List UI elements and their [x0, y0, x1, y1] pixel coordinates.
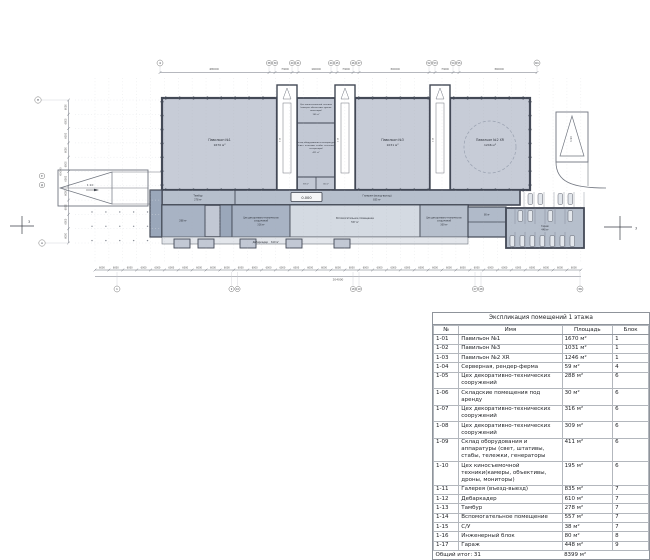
room-block: 6 — [613, 389, 649, 405]
room-block: 1 — [613, 335, 649, 344]
svg-text:Д: Д — [41, 183, 43, 187]
room-name: Цех декоративно-технических сооружений — [459, 422, 562, 438]
room-area-label: 1031 м² — [386, 143, 399, 147]
dim-label: 6000 — [224, 266, 230, 269]
room-block: 6 — [613, 462, 649, 486]
room-block: 6 — [613, 422, 649, 438]
car-icon — [548, 211, 553, 222]
dim-label: 6000 — [529, 266, 535, 269]
room-area: 288 м² — [562, 372, 613, 388]
room-number: 1-17 — [434, 541, 459, 550]
room-name: Дебаркадер — [459, 495, 562, 504]
dim-label: 6000 — [488, 266, 494, 269]
room-area: 309 м² — [562, 422, 613, 438]
room-label: Цех киносъемочной техники — [300, 103, 332, 106]
room-label: мониторы) — [310, 110, 322, 112]
room-area: 80 м² — [562, 532, 613, 541]
room-area: 557 м² — [562, 513, 613, 522]
west-end-block — [150, 190, 162, 237]
car-icon — [518, 211, 523, 222]
dim-label: 6000 — [238, 266, 244, 269]
dim-label: 6000 — [502, 266, 508, 269]
room-number: 1-08 — [434, 422, 459, 438]
room-block: 4 — [613, 363, 649, 372]
room-label: генераторы) — [309, 148, 323, 150]
room-name: Складские помещения под аренду — [459, 389, 562, 405]
room-area-label: 195 м² — [312, 113, 319, 116]
dim-label: 7900 — [281, 67, 289, 71]
grid-bubble: 18 — [350, 286, 355, 291]
grid-bubble: 36 — [577, 286, 583, 292]
room-area-label: 411 м² — [312, 151, 319, 154]
room-number: 1-02 — [434, 344, 459, 353]
right-ramp: 1:10 — [556, 112, 606, 188]
grid-bubble: 44 — [328, 60, 333, 65]
dim-label: 6000 — [65, 189, 68, 195]
schedule-footer-empty — [613, 551, 649, 560]
table-row: 1-15 С/У 38 м² 7 — [434, 523, 649, 532]
dim-label: 6000 — [460, 266, 466, 269]
svg-text:45: 45 — [335, 62, 339, 65]
dim-label: 6000 — [182, 266, 188, 269]
dim-label: 6000 — [363, 266, 369, 269]
dim-label: 6000 — [446, 266, 452, 269]
car-icon — [530, 236, 535, 247]
room-name: Павильон №3 — [459, 344, 562, 353]
dim-label: 6000 — [65, 132, 68, 138]
room-number: 1-11 — [434, 485, 459, 494]
vestibule-tower: 1:10 — [430, 85, 450, 190]
room-area-label: 316 м² — [257, 224, 265, 227]
car-icon — [550, 236, 555, 247]
svg-text:10: 10 — [236, 288, 240, 291]
schedule-grid: № Имя Площадь Блок 1-01 Павильон №1 1670… — [433, 325, 649, 559]
svg-text:40: 40 — [290, 62, 294, 65]
schedule-footer-row: Общий итог: 31 8399 м² — [434, 551, 649, 560]
car-icon — [540, 236, 545, 247]
room-name: Цех декоративно-технических сооружений — [459, 372, 562, 388]
dim-label: 16000 — [311, 67, 321, 71]
section-number: 3 — [635, 227, 637, 231]
grid-bubble: 55 — [456, 60, 461, 65]
room-area: 316 м² — [562, 405, 613, 421]
room-name: Вспомогательное помещение — [459, 513, 562, 522]
room-number: 1-13 — [434, 504, 459, 513]
left-ramp: 1:10 — [58, 170, 162, 206]
room-name: Галерея (въезд-выезд) — [459, 485, 562, 494]
room-area: 1246 м² — [562, 354, 613, 363]
dim-label: 6000 — [557, 266, 563, 269]
floor-plan: 1:10 1:10 — [0, 0, 650, 310]
dim-label: 6000 — [377, 266, 383, 269]
bottom-dim-chain: 204000 600060006000600060006000600060006… — [94, 266, 583, 286]
dim-label: 6000 — [432, 266, 438, 269]
svg-text:52: 52 — [427, 62, 431, 65]
schedule-title: Экспликация помещений 1 этажа — [433, 313, 649, 325]
dim-label: 6000 — [113, 266, 119, 269]
room-area: 195 м² — [562, 462, 613, 486]
col-header-num: № — [434, 326, 459, 335]
dim-label: 6000 — [571, 266, 577, 269]
svg-text:47: 47 — [357, 62, 361, 65]
schedule-body: 1-01 Павильон №1 1670 м² 1 1-02 Павильон… — [434, 335, 649, 551]
room-block: 6 — [613, 438, 649, 462]
dim-label: 6000 — [127, 266, 133, 269]
svg-text:28: 28 — [479, 288, 483, 291]
schedule-header-row: № Имя Площадь Блок — [434, 326, 649, 335]
dim-label: 60000 — [59, 167, 63, 176]
room-label: Дебаркадер — [253, 241, 269, 244]
room-label: Павильон №3 — [381, 138, 404, 142]
dim-label: 6000 — [196, 266, 202, 269]
section-number: 3 — [28, 220, 30, 224]
svg-text:39: 39 — [273, 62, 277, 65]
room-label: (камеры, объективы, дроны, — [300, 106, 332, 109]
dim-label: 204000 — [333, 278, 344, 282]
dim-label: 36000 — [494, 67, 504, 71]
svg-text:54: 54 — [451, 62, 455, 65]
col-header-area: Площадь — [562, 326, 613, 335]
grid-bubble: 19 — [356, 286, 361, 291]
room-label: Павильон №2 XR — [476, 138, 505, 142]
grid-bubble: Н — [35, 97, 69, 103]
svg-text:46: 46 — [351, 62, 355, 65]
room-label: Вспомогательное помещение — [336, 217, 374, 220]
room-number: 1-05 — [434, 372, 459, 388]
room-label: Павильон №1 — [208, 138, 231, 142]
dim-label: 6000 — [335, 266, 341, 269]
room-area-label: 557 м² — [351, 221, 359, 224]
room-area: 38 м² — [562, 523, 613, 532]
svg-text:55: 55 — [457, 62, 461, 65]
dim-label: 6000 — [266, 266, 272, 269]
grid-bubble: 41 — [295, 60, 300, 65]
dim-label: 7900 — [342, 67, 350, 71]
dim-label: 6000 — [141, 266, 147, 269]
room-block: 7 — [613, 504, 649, 513]
column-dots — [91, 211, 148, 241]
svg-text:19: 19 — [357, 288, 361, 291]
room-label: (свет, штативы, стабы, тележки, — [298, 144, 335, 147]
room-label: Галерея (въезд-выезд) — [362, 195, 391, 198]
room-block: 8 — [613, 532, 649, 541]
table-row: 1-09 Склад оборудования и аппаратуры (св… — [434, 438, 649, 462]
dim-label: 6000 — [65, 147, 68, 153]
dim-label: 6000 — [65, 104, 68, 110]
dim-label: 6000 — [279, 266, 285, 269]
table-row: 1-14 Вспомогательное помещение 557 м² 7 — [434, 513, 649, 522]
room-block: 6 — [613, 405, 649, 421]
dim-label: 6000 — [307, 266, 313, 269]
car-icon — [528, 194, 533, 205]
room-area-label: 288 м² — [179, 220, 187, 223]
col-header-name: Имя — [459, 326, 562, 335]
room-number: 1-16 — [434, 532, 459, 541]
car-icon — [570, 236, 575, 247]
table-row: 1-04 Серверная, рендер-ферма 59 м² 4 — [434, 363, 649, 372]
room-number: 1-03 — [434, 354, 459, 363]
svg-text:44: 44 — [329, 62, 333, 65]
room-block: 9 — [613, 541, 649, 550]
svg-text:4: 4 — [159, 61, 161, 65]
dim-label: 6000 — [65, 232, 68, 238]
room-name: Инженерный блок — [459, 532, 562, 541]
grid-bubble: 52 — [426, 60, 431, 65]
room-number: 1-14 — [434, 513, 459, 522]
top-dim-chain: 48000 7900 16000 7900 30000 7900 36000 — [159, 66, 539, 74]
room-schedule-table: Экспликация помещений 1 этажа № Имя Площ… — [432, 312, 650, 560]
table-row: 1-02 Павильон №3 1031 м² 1 — [434, 344, 649, 353]
grid-bubble: 10 — [235, 286, 240, 291]
room-area: 448 м² — [562, 541, 613, 550]
room-label: Тамбур — [193, 195, 203, 198]
dim-label: 6000 — [168, 266, 174, 269]
car-icon — [528, 211, 533, 222]
svg-text:61: 61 — [535, 61, 539, 65]
svg-text:41: 41 — [296, 62, 300, 65]
section-marker-left: 3 — [10, 216, 34, 234]
table-row: 1-01 Павильон №1 1670 м² 1 — [434, 335, 649, 344]
grid-bubble: 38 — [266, 60, 271, 65]
car-icon — [510, 236, 515, 247]
table-row: 1-16 Инженерный блок 80 м² 8 — [434, 532, 649, 541]
ramp-slope-label: 1:10 — [87, 183, 94, 187]
dim-label: 6000 — [321, 266, 327, 269]
dim-label: 6000 — [543, 266, 549, 269]
room-area: 30 м² — [562, 389, 613, 405]
room-number: 1-10 — [434, 462, 459, 486]
grid-bubble: 47 — [356, 60, 361, 65]
dim-label: 6000 — [515, 266, 521, 269]
car-icon — [560, 236, 565, 247]
room-block: 7 — [613, 495, 649, 504]
grid-bubble: 28 — [478, 286, 483, 291]
room-block: 6 — [613, 372, 649, 388]
dim-label: 6000 — [252, 266, 258, 269]
svg-text:Н: Н — [37, 98, 39, 102]
dim-label: 7900 — [441, 67, 449, 71]
dim-label: 6000 — [293, 266, 299, 269]
room-name: Цех декоративно-технических сооружений — [459, 405, 562, 421]
room-area: 1031 м² — [562, 344, 613, 353]
grid-bubble: 45 — [334, 60, 339, 65]
dim-label: 6000 — [404, 266, 410, 269]
dim-label: 6000 — [65, 118, 68, 124]
section-marker-right: 3 — [604, 216, 637, 240]
room-label: Склад оборудования и аппаратуры — [297, 141, 336, 144]
room-area: 610 м² — [562, 495, 613, 504]
car-icon — [520, 236, 525, 247]
svg-text:36: 36 — [578, 287, 582, 291]
dim-label: 6000 — [210, 266, 216, 269]
room-name: Павильон №2 XR — [459, 354, 562, 363]
dim-label: 6000 — [155, 266, 161, 269]
room-block: 1 — [613, 344, 649, 353]
grid-bubble: 4 — [157, 60, 163, 66]
room-area: 278 м² — [562, 504, 613, 513]
dim-label: 30000 — [390, 67, 400, 71]
table-row: 1-13 Тамбур 278 м² 7 — [434, 504, 649, 513]
schedule-total-label: Общий итог: 31 — [434, 551, 563, 560]
dim-label: 6000 — [349, 266, 355, 269]
table-row: 1-03 Павильон №2 XR 1246 м² 1 — [434, 354, 649, 363]
room-name: Тамбур — [459, 504, 562, 513]
dim-label: 6000 — [65, 161, 68, 167]
grid-bubble: 61 — [534, 60, 540, 66]
building: 1:10 1:10 — [58, 85, 606, 248]
room-area-label: 610 м² — [271, 241, 279, 244]
col-header-block: Блок — [613, 326, 649, 335]
car-icon — [538, 194, 543, 205]
room-name: Гараж — [459, 541, 562, 550]
dim-label: 6000 — [99, 266, 105, 269]
dim-label: 6000 — [418, 266, 424, 269]
room-number: 1-15 — [434, 523, 459, 532]
dim-label: 6000 — [65, 218, 68, 224]
schedule-total-area: 8399 м² — [562, 551, 613, 560]
room-block: 7 — [613, 485, 649, 494]
svg-text:1: 1 — [116, 287, 118, 291]
room-name: Серверная, рендер-ферма — [459, 363, 562, 372]
dim-label: 48000 — [209, 67, 219, 71]
dim-label: 6000 — [390, 266, 396, 269]
table-row: 1-11 Галерея (въезд-выезд) 835 м² 7 — [434, 485, 649, 494]
table-row: 1-07 Цех декоративно-технических сооруже… — [434, 405, 649, 421]
grid-bubble: 40 — [289, 60, 294, 65]
gallery-strip — [162, 190, 520, 205]
table-row: 1-08 Цех декоративно-технических сооруже… — [434, 422, 649, 438]
room-label: сооружений — [254, 220, 269, 223]
vestibule-tower: 1:10 — [277, 85, 297, 190]
svg-text:53: 53 — [433, 62, 437, 65]
room-name: Павильон №1 — [459, 335, 562, 344]
room-block: 1 — [613, 354, 649, 363]
svg-text:18: 18 — [351, 288, 355, 291]
table-row: 1-06 Складские помещения под аренду 30 м… — [434, 389, 649, 405]
room-name: С/У — [459, 523, 562, 532]
room-number: 1-04 — [434, 363, 459, 372]
ramp-slope-label: 1:10 — [569, 136, 573, 142]
grid-bubbles-bottom: 1 9 10 18 19 27 28 36 — [114, 286, 583, 292]
car-icon — [558, 194, 563, 205]
room-area-label: 1246 м² — [484, 143, 497, 147]
car-icon — [568, 194, 573, 205]
grid-bubble: 1 — [114, 286, 120, 292]
room-area: 59 м² — [562, 363, 613, 372]
room-number: 1-07 — [434, 405, 459, 421]
room-area-label: 278 м² — [194, 199, 202, 202]
room-block: 7 — [613, 523, 649, 532]
room-area-label: 835 м² — [373, 199, 381, 202]
room-number: 1-09 — [434, 438, 459, 462]
room-block: 7 — [613, 513, 649, 522]
svg-text:38: 38 — [267, 62, 271, 65]
grid-bubble: Е — [39, 173, 45, 179]
grid-bubble: 27 — [472, 286, 477, 291]
level-marker: 0.000 — [301, 196, 312, 200]
grid-bubble: 54 — [450, 60, 455, 65]
table-row: 1-05 Цех декоративно-технических сооруже… — [434, 372, 649, 388]
grid-bubble: 46 — [350, 60, 355, 65]
room-name: Цех киносъемочной техники(камеры, объект… — [459, 462, 562, 486]
room-number: 1-01 — [434, 335, 459, 344]
grid-bubbles-top: 4 38 39 40 41 44 45 46 47 52 53 54 55 61 — [157, 60, 540, 66]
grid-bubble: Д — [39, 182, 45, 188]
room-area: 835 м² — [562, 485, 613, 494]
table-row: 1-12 Дебаркадер 610 м² 7 — [434, 495, 649, 504]
small-room — [220, 205, 232, 237]
grid-bubble: 9 — [229, 286, 234, 291]
room-number: 1-12 — [434, 495, 459, 504]
table-row: 1-10 Цех киносъемочной техники(камеры, о… — [434, 462, 649, 486]
grid-bubble: А — [39, 240, 69, 246]
room-number: 1-06 — [434, 389, 459, 405]
dim-label: 6000 — [65, 204, 68, 210]
car-icon — [568, 211, 573, 222]
room-area-label: 59 м² — [303, 183, 309, 186]
room-area-label: 448 м² — [541, 229, 549, 232]
room-area-label: 30 м² — [323, 183, 329, 186]
table-row: 1-17 Гараж 448 м² 9 — [434, 541, 649, 550]
dim-label: 6000 — [474, 266, 480, 269]
grid-bubble: 39 — [272, 60, 277, 65]
room-area-label: 309 м² — [440, 224, 448, 227]
room-area: 411 м² — [562, 438, 613, 462]
room-area: 1670 м² — [562, 335, 613, 344]
room-name: Склад оборудования и аппаратуры (свет, ш… — [459, 438, 562, 462]
room-area-label: 1670 м² — [213, 143, 226, 147]
svg-text:27: 27 — [473, 288, 477, 291]
dim-label: 6000 — [65, 175, 68, 181]
room-label: сооружений — [437, 220, 452, 223]
room-area-label: 80 м² — [484, 214, 490, 217]
grid-bubble: 53 — [432, 60, 437, 65]
